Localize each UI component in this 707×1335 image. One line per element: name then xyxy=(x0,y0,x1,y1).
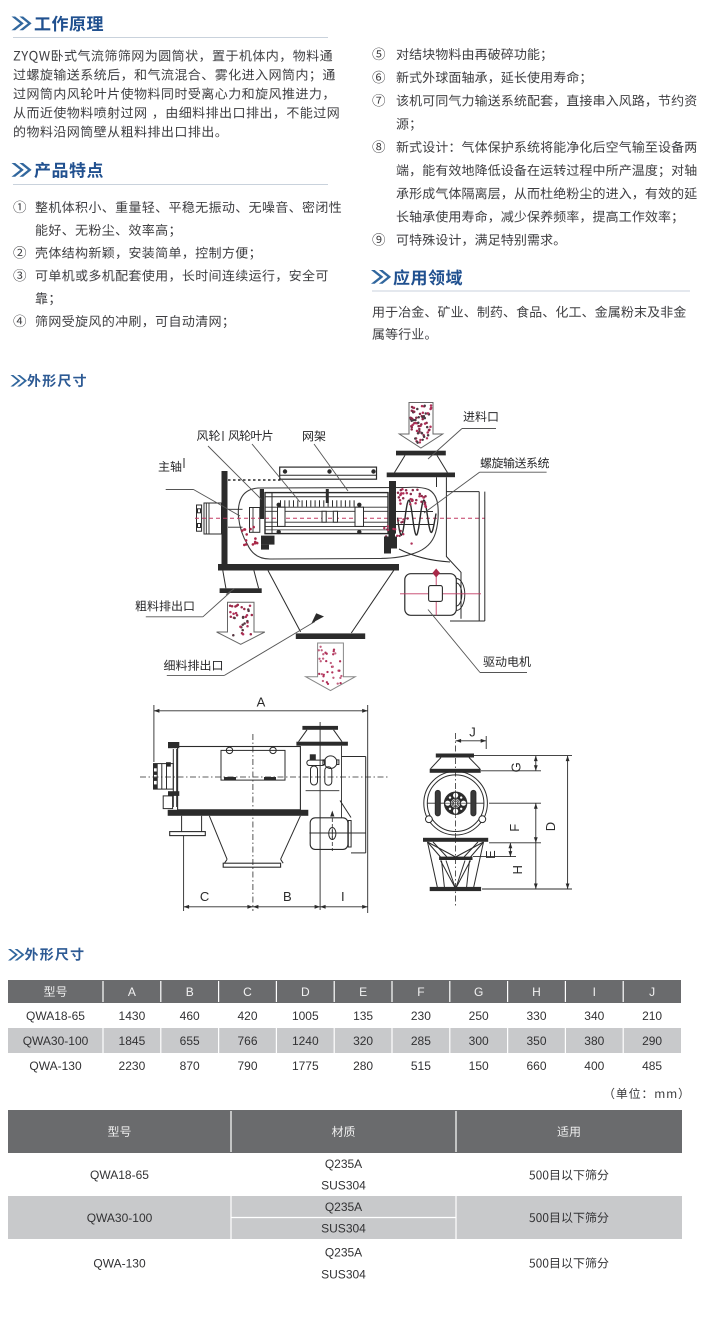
svg-text:C: C xyxy=(200,889,209,904)
svg-text:J: J xyxy=(469,725,476,740)
svg-text:790: 790 xyxy=(237,1059,257,1073)
svg-text:D: D xyxy=(543,822,558,831)
svg-text:340: 340 xyxy=(584,1009,604,1023)
svg-text:A: A xyxy=(128,985,136,999)
svg-text:Q235A: Q235A xyxy=(325,1245,362,1259)
svg-text:D: D xyxy=(301,985,310,999)
svg-text:1845: 1845 xyxy=(119,1034,146,1048)
svg-text:H: H xyxy=(510,865,525,874)
svg-text:350: 350 xyxy=(526,1034,546,1048)
svg-text:420: 420 xyxy=(237,1009,257,1023)
svg-text:290: 290 xyxy=(642,1034,662,1048)
svg-text:330: 330 xyxy=(526,1009,546,1023)
svg-text:C: C xyxy=(243,985,252,999)
svg-text:G: G xyxy=(474,985,483,999)
svg-text:320: 320 xyxy=(353,1034,373,1048)
svg-text:I: I xyxy=(593,985,596,999)
svg-text:A: A xyxy=(257,695,266,710)
svg-text:230: 230 xyxy=(411,1009,431,1023)
svg-text:QWA18-65: QWA18-65 xyxy=(26,1009,85,1023)
svg-text:H: H xyxy=(532,985,541,999)
svg-text:250: 250 xyxy=(469,1009,489,1023)
svg-text:380: 380 xyxy=(584,1034,604,1048)
svg-text:I: I xyxy=(341,889,345,904)
svg-text:135: 135 xyxy=(353,1009,373,1023)
svg-text:F: F xyxy=(507,824,522,832)
svg-text:655: 655 xyxy=(180,1034,200,1048)
svg-text:515: 515 xyxy=(411,1059,431,1073)
svg-text:485: 485 xyxy=(642,1059,662,1073)
svg-text:QWA30-100: QWA30-100 xyxy=(87,1211,153,1225)
svg-text:QWA-130: QWA-130 xyxy=(29,1059,82,1073)
svg-text:E: E xyxy=(483,850,498,859)
svg-text:766: 766 xyxy=(237,1034,257,1048)
svg-text:1240: 1240 xyxy=(292,1034,319,1048)
svg-text:1005: 1005 xyxy=(292,1009,319,1023)
svg-text:QWA-130: QWA-130 xyxy=(93,1256,146,1270)
svg-text:285: 285 xyxy=(411,1034,431,1048)
svg-text:QWA18-65: QWA18-65 xyxy=(90,1168,149,1182)
svg-text:SUS304: SUS304 xyxy=(321,1267,366,1281)
svg-text:SUS304: SUS304 xyxy=(321,1179,366,1193)
svg-text:Q235A: Q235A xyxy=(325,1157,362,1171)
svg-text:B: B xyxy=(283,889,292,904)
svg-text:QWA30-100: QWA30-100 xyxy=(23,1034,89,1048)
svg-text:SUS304: SUS304 xyxy=(321,1222,366,1236)
svg-text:300: 300 xyxy=(469,1034,489,1048)
svg-text:1775: 1775 xyxy=(292,1059,319,1073)
svg-text:B: B xyxy=(186,985,194,999)
svg-text:870: 870 xyxy=(180,1059,200,1073)
svg-text:F: F xyxy=(417,985,424,999)
svg-text:1430: 1430 xyxy=(119,1009,146,1023)
svg-text:660: 660 xyxy=(526,1059,546,1073)
svg-text:210: 210 xyxy=(642,1009,662,1023)
svg-text:280: 280 xyxy=(353,1059,373,1073)
svg-text:Q235A: Q235A xyxy=(325,1200,362,1214)
svg-text:460: 460 xyxy=(180,1009,200,1023)
svg-text:2230: 2230 xyxy=(119,1059,146,1073)
svg-text:400: 400 xyxy=(584,1059,604,1073)
svg-text:J: J xyxy=(649,985,655,999)
svg-text:150: 150 xyxy=(469,1059,489,1073)
svg-text:G: G xyxy=(509,762,524,772)
svg-text:E: E xyxy=(359,985,367,999)
